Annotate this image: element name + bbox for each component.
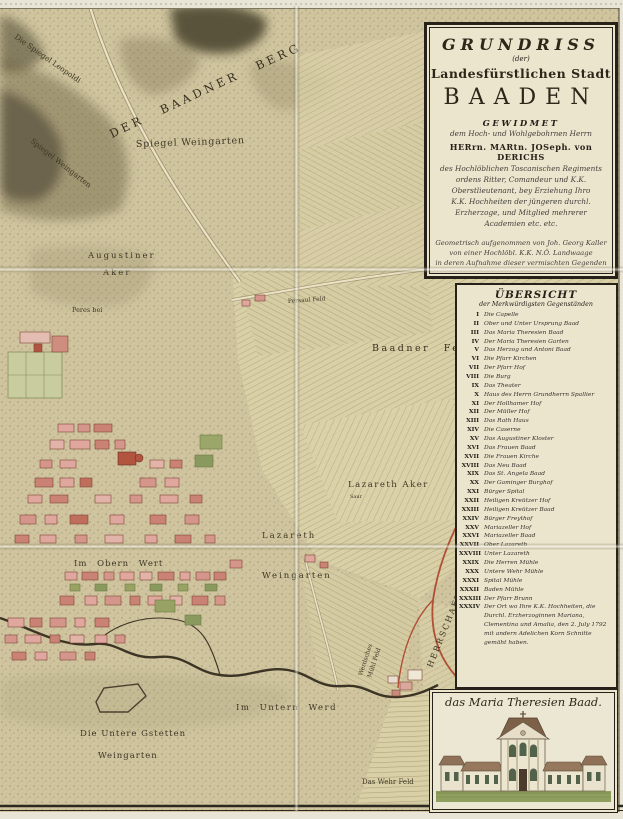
legend-item-numeral: IV: [459, 338, 484, 347]
legend-item-numeral: XVI: [459, 444, 484, 453]
vignette-caption: das Maria Theresien Baad.: [433, 693, 614, 709]
legend-item-label: Der Müller Hof: [484, 408, 613, 417]
dedication-heading: GEWIDMET: [430, 119, 612, 129]
label-saur: Saur: [350, 494, 363, 500]
legend-item-numeral: XXVI: [459, 532, 484, 541]
legend-item-numeral: XIV: [459, 426, 484, 435]
legend-item: XVIIDie Frauen Kirche: [459, 453, 613, 462]
legend-item-numeral: XXV: [459, 524, 484, 533]
label-untere-gstetten: Die Untere Gstetten: [80, 729, 186, 739]
legend-item-numeral: XIII: [459, 417, 484, 426]
legend-item-label: Der Ort wo Ihre K.K. Hochheiten, die Dur…: [484, 603, 613, 647]
surveyor-text: Geometrisch aufgenommen von Joh. Georg K…: [430, 238, 612, 269]
legend-item: XXDer Gaminger Burghof: [459, 479, 613, 488]
legend-item: VIDie Pfarr Kirchen: [459, 355, 613, 364]
legend-item-numeral: I: [459, 311, 484, 320]
surveyor-line: in deren Aufnahme dieser vermischten Geg…: [430, 258, 612, 268]
legend-title: ÜBERSICHT: [459, 289, 613, 301]
legend-item-numeral: XVIII: [459, 462, 484, 471]
legend-item-label: Der Maria Theresien Garten: [484, 338, 613, 347]
label-lazareth-aker: Lazareth Aker: [348, 480, 429, 490]
legend-item: VIIDer Pfarr Hof: [459, 364, 613, 373]
legend-item: XXIXDie Herren Mühle: [459, 559, 613, 568]
legend-item-numeral: XXXIV: [459, 603, 484, 647]
label-weingarten-low: Weingarten: [98, 751, 158, 761]
legend-item-label: Untere Wehr Mühle: [484, 568, 613, 577]
legend-item-label: Ober Lazareth: [484, 541, 613, 550]
dedication-line: Academien etc. etc.: [430, 219, 612, 230]
legend-item: VDas Herzog und Antoni Baad: [459, 346, 613, 355]
legend-item-numeral: II: [459, 320, 484, 329]
legend-item-numeral: XXXIII: [459, 595, 484, 604]
legend-item: XXXISpital Mühle: [459, 577, 613, 586]
label-im-untern-werd: Im Untern Werd: [236, 703, 337, 713]
legend-item-label: Der Hollhamer Hof: [484, 400, 613, 409]
legend-item-label: Mariazeller Hof: [484, 524, 613, 533]
legend-item-numeral: XXII: [459, 497, 484, 506]
legend-item-numeral: XI: [459, 400, 484, 409]
castle-garden: [8, 352, 62, 398]
legend-item-label: Das Maria Theresien Baad: [484, 329, 613, 338]
legend-item-label: Der Pfarr Hof: [484, 364, 613, 373]
legend-item: XHaus des Herrn Grundherrn Spallier: [459, 391, 613, 400]
legend-item: XVIIIDas Neu Baad: [459, 462, 613, 471]
legend-item: XXVIMariazeller Baad: [459, 532, 613, 541]
legend-item-label: Heiligen Kreützer Hof: [484, 497, 613, 506]
legend-item: VIIIDie Burg: [459, 373, 613, 382]
dedication-to: dem Hoch- und Wohlgebohrnen Herrn: [430, 129, 612, 140]
legend-item-label: Die Herren Mühle: [484, 559, 613, 568]
legend-item: XXIIHeiligen Kreützer Hof: [459, 497, 613, 506]
legend-item: XIDer Hollhamer Hof: [459, 400, 613, 409]
legend-item: XXXUntere Wehr Mühle: [459, 568, 613, 577]
legend-item-label: Unter Lazareth: [484, 550, 613, 559]
map-title-der: (der): [430, 55, 612, 63]
map-subtitle: Landesfürstlichen Stadt: [430, 66, 612, 81]
legend-item: IDie Capelle: [459, 311, 613, 320]
legend-item-numeral: VIII: [459, 373, 484, 382]
legend-list: IDie CapelleIIOber und Unter Ursprung Ba…: [459, 311, 613, 648]
title-cartouche-inner: GRUNDRISS (der) Landesfürstlichen Stadt …: [429, 27, 613, 274]
legend-item-numeral: XIX: [459, 470, 484, 479]
legend-item-label: Bürger Freythof: [484, 515, 613, 524]
legend-item-numeral: XV: [459, 435, 484, 444]
surveyor-line: Geometrisch aufgenommen von Joh. Georg K…: [430, 238, 612, 248]
legend-item-numeral: XII: [459, 408, 484, 417]
legend-item-label: Die Caserne: [484, 426, 613, 435]
legend-item-numeral: XXVII: [459, 541, 484, 550]
legend-item: XIXDas St. Angela Baad: [459, 470, 613, 479]
dedication-text: des Hochlöblichen Toscanischen Regiments…: [430, 164, 612, 230]
dedication-line: Erzherzoge, und Mitglied mehrerer: [430, 208, 612, 219]
label-im-obern-wert: Im Obern Wert: [74, 559, 163, 569]
dedication-line: des Hochlöblichen Toscanischen Regiments: [430, 164, 612, 175]
legend-item-numeral: XXXI: [459, 577, 484, 586]
legend-item: XXIIIHeiligen Kreützer Baad: [459, 506, 613, 515]
legend-item-label: Haus des Herrn Grundherrn Spallier: [484, 391, 613, 400]
dedicatee-name: HERrn. MARtn. JOSeph. von DERICHS: [430, 142, 612, 162]
legend-item: XXVIIOber Lazareth: [459, 541, 613, 550]
label-augustiner-aker: Aker: [102, 268, 131, 278]
dedication-line: Oberstlieutenant, bey Erziehung Ihro: [430, 186, 612, 197]
legend-item-numeral: XXVIII: [459, 550, 484, 559]
legend-item-numeral: VII: [459, 364, 484, 373]
legend-subtitle: der Merkwürdigsten Gegenständen: [459, 301, 613, 308]
legend-item: XXVMariazeller Hof: [459, 524, 613, 533]
legend-item: XIIDer Müller Hof: [459, 408, 613, 417]
legend-item-label: Das Augustiner Kloster: [484, 435, 613, 444]
legend-item: IIIDas Maria Theresien Baad: [459, 329, 613, 338]
legend-item-numeral: XXXII: [459, 586, 484, 595]
legend-item-label: Die Burg: [484, 373, 613, 382]
legend-item-label: Heiligen Kreützer Baad: [484, 506, 613, 515]
legend-item: XXXIIBaden Mühle: [459, 586, 613, 595]
legend-item-numeral: III: [459, 329, 484, 338]
legend-item-numeral: XVII: [459, 453, 484, 462]
legend-item-label: Mariazeller Baad: [484, 532, 613, 541]
legend-item-numeral: XXIII: [459, 506, 484, 515]
legend-item-numeral: V: [459, 346, 484, 355]
legend-item-label: Bürger Spital: [484, 488, 613, 497]
legend-item-label: Das Neu Baad: [484, 462, 613, 471]
map-sheet: DER BAADNER BERG Spiegel Weingarten Spie…: [0, 0, 623, 819]
legend-item-numeral: XXX: [459, 568, 484, 577]
label-das-wehr-feld: Das Wehr Feld: [362, 778, 414, 786]
legend-item: XXXIIIDer Pfarr Brunn: [459, 595, 613, 604]
label-augustiner: Augustiner: [87, 251, 156, 261]
legend-item-label: Das Theater: [484, 382, 613, 391]
legend-item-numeral: IX: [459, 382, 484, 391]
legend-panel: ÜBERSICHT der Merkwürdigsten Gegenstände…: [455, 283, 618, 689]
legend-item: XVDas Augustiner Kloster: [459, 435, 613, 444]
legend-item: XVIDas Frauen Baad: [459, 444, 613, 453]
legend-item-label: Ober und Unter Ursprung Baad: [484, 320, 613, 329]
legend-item-numeral: XX: [459, 479, 484, 488]
legend-item: XIIIDas Rath Haus: [459, 417, 613, 426]
map-city-name: BAADEN: [430, 85, 612, 110]
legend-item-label: Baden Mühle: [484, 586, 613, 595]
legend-item-label: Das Herzog und Antoni Baad: [484, 346, 613, 355]
vignette-inner: das Maria Theresien Baad.: [432, 692, 615, 810]
legend-item-numeral: XXI: [459, 488, 484, 497]
label-lazareth: Lazareth: [262, 531, 316, 541]
dedication-line: K.K. Hochheiten der jüngeren durchl.: [430, 197, 612, 208]
legend-item-numeral: VI: [459, 355, 484, 364]
legend-item-label: Spital Mühle: [484, 577, 613, 586]
surveyor-line: von einer Hochlöbl. K.K. N.Ö. Landwaage: [430, 248, 612, 258]
legend-item-numeral: X: [459, 391, 484, 400]
legend-item: XIVDie Caserne: [459, 426, 613, 435]
maria-theresien-baad-illustration: [433, 709, 614, 805]
legend-item-label: Das Rath Haus: [484, 417, 613, 426]
label-peres-bei: Peres bei: [72, 306, 102, 314]
title-cartouche: GRUNDRISS (der) Landesfürstlichen Stadt …: [424, 22, 618, 279]
dedication-line: ordens Ritter, Comandeur und K.K.: [430, 175, 612, 186]
legend-item-label: Das St. Angela Baad: [484, 470, 613, 479]
legend-item-label: Die Pfarr Kirchen: [484, 355, 613, 364]
vignette-panel: das Maria Theresien Baad.: [429, 689, 618, 813]
legend-item-label: Die Frauen Kirche: [484, 453, 613, 462]
legend-item: IXDas Theater: [459, 382, 613, 391]
legend-item-label: Der Pfarr Brunn: [484, 595, 613, 604]
legend-item-numeral: XXIV: [459, 515, 484, 524]
legend-item: IVDer Maria Theresien Garten: [459, 338, 613, 347]
map-title: GRUNDRISS: [430, 35, 612, 54]
legend-item: XXIBürger Spital: [459, 488, 613, 497]
label-weingarten-mid: Weingarten: [262, 571, 332, 581]
legend-item-label: Der Gaminger Burghof: [484, 479, 613, 488]
legend-item: XXXIVDer Ort wo Ihre K.K. Hochheiten, di…: [459, 603, 613, 647]
legend-item-label: Das Frauen Baad: [484, 444, 613, 453]
legend-item-label: Die Capelle: [484, 311, 613, 320]
legend-item: XXIVBürger Freythof: [459, 515, 613, 524]
legend-item: XXVIIIUnter Lazareth: [459, 550, 613, 559]
legend-item: IIOber und Unter Ursprung Baad: [459, 320, 613, 329]
legend-item-numeral: XXIX: [459, 559, 484, 568]
